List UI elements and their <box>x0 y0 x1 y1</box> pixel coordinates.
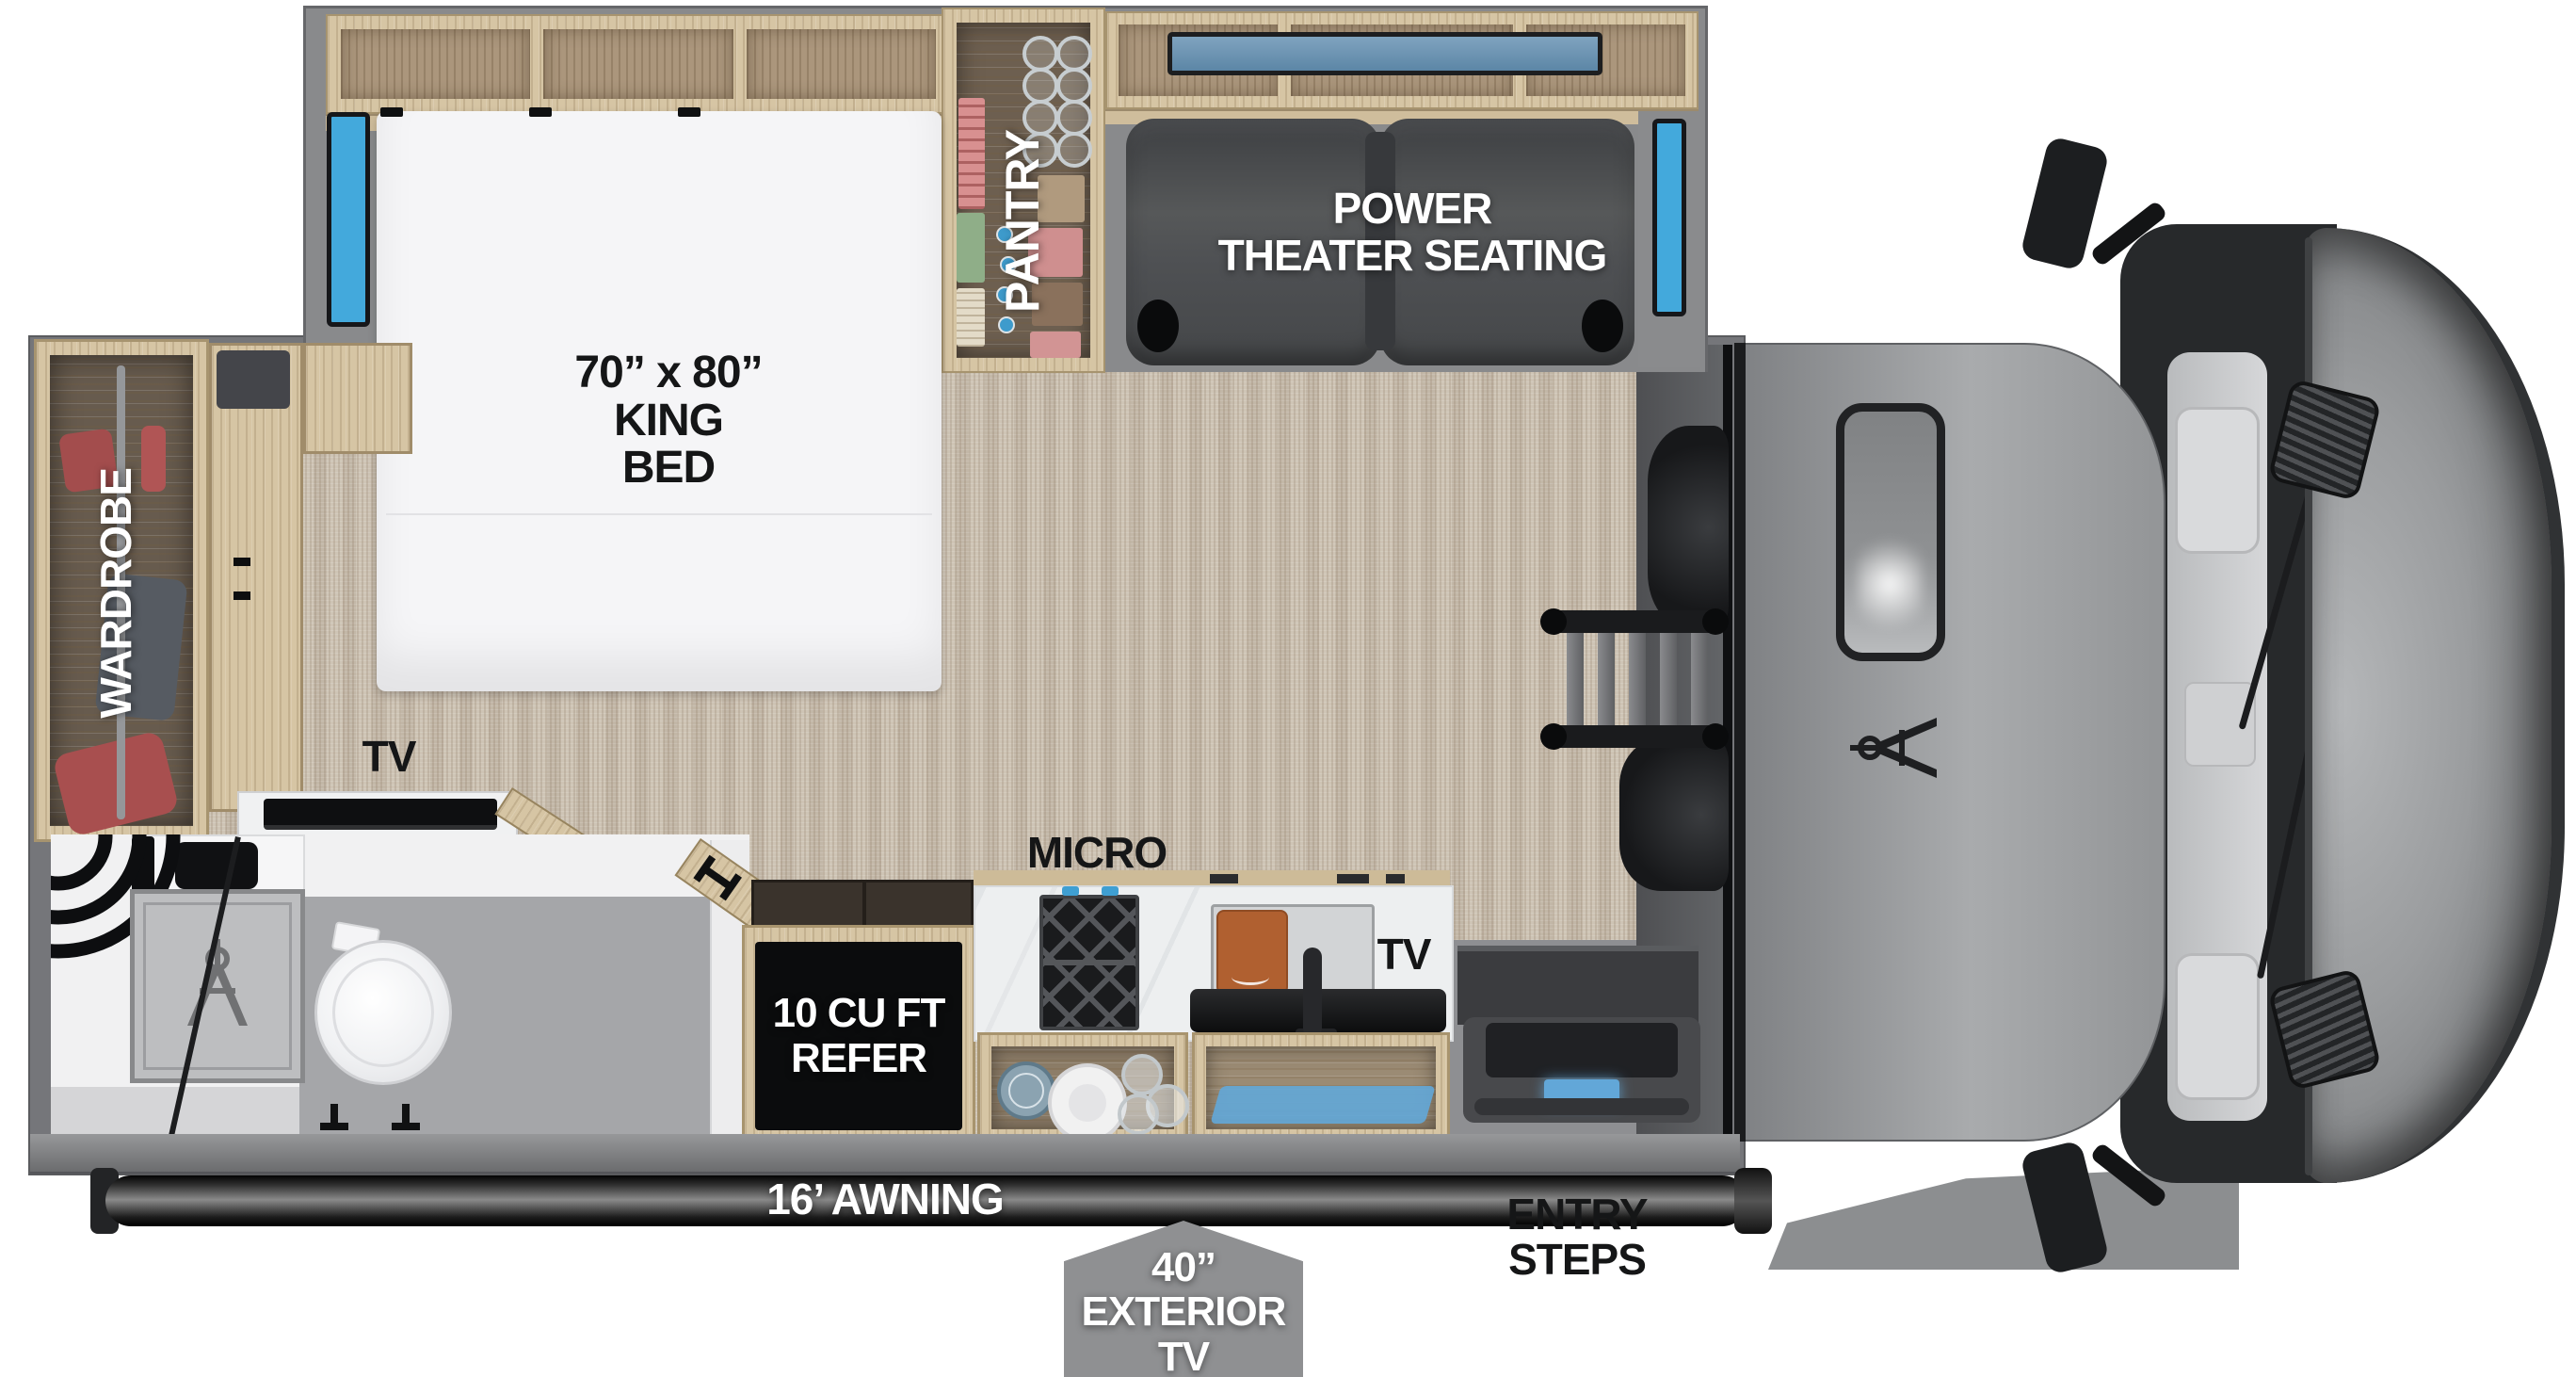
bottom-sidewall <box>30 1134 1740 1174</box>
refer-label-line1: 10 CU FT <box>773 991 945 1036</box>
nightstand-tray <box>217 350 290 409</box>
toilet <box>314 940 452 1085</box>
cab-seat-bottom <box>1619 738 1729 891</box>
overhead-cabinet-bed <box>326 14 951 114</box>
bed-handle <box>678 107 700 117</box>
theater-label-line1: POWER <box>1333 186 1492 233</box>
cabover-left-edge <box>1734 343 1746 1142</box>
bowl <box>997 1061 1055 1120</box>
counter-back-mark <box>1337 874 1369 883</box>
wardrobe-label: WARDROBE <box>38 405 196 782</box>
bunk-ladder <box>1540 607 1729 753</box>
exterior-tv-line1: 40” EXTERIOR <box>1064 1245 1303 1335</box>
theater-seating-label: POWER THEATER SEATING <box>1158 181 1666 284</box>
ladder-rail <box>1546 610 1723 633</box>
kitchen-tv-label: TV <box>1361 931 1446 978</box>
kitchen-tv-text: TV <box>1377 931 1431 977</box>
living-window <box>1652 119 1686 316</box>
compass-logo-icon <box>165 939 270 1033</box>
counter-back-mark <box>1210 874 1238 883</box>
kitchen-faucet <box>1303 948 1322 1038</box>
cabinet-handle <box>233 591 250 600</box>
king-bed-label: 70” x 80” KING BED <box>527 341 810 501</box>
ladder-rail <box>1546 725 1723 748</box>
awning-label: 16’ AWNING <box>725 1174 1045 1226</box>
floor-mat-hook <box>392 1104 420 1130</box>
awning-end-cap <box>1734 1168 1772 1234</box>
compass-logo-icon <box>1850 692 1944 803</box>
cab-seat-top <box>1648 426 1729 629</box>
bedroom-side-cabinet <box>209 343 303 812</box>
bedroom-window <box>327 112 370 327</box>
refrigerator: 10 CU FT REFER <box>755 942 962 1130</box>
counter-back-mark <box>1386 874 1405 883</box>
plate <box>1048 1063 1127 1142</box>
exterior-tv-line2: TV <box>1158 1335 1209 1377</box>
cabinet-door-panel <box>341 29 530 99</box>
drawer-mat <box>1210 1086 1435 1124</box>
stove-cooktop <box>1039 895 1139 1030</box>
theater-label-line2: THEATER SEATING <box>1218 233 1607 280</box>
bedroom-tv-panel <box>264 799 497 830</box>
pantry-label-text: PANTRY <box>997 130 1048 313</box>
theater-window-slot <box>1167 32 1602 75</box>
stove-knob <box>1062 886 1079 896</box>
entry-steps-text: ENTRY STEPS <box>1450 1191 1704 1283</box>
floor-mat-hook <box>320 1104 348 1130</box>
bed-fold-line <box>386 513 932 515</box>
bedroom-tv-label: TV <box>346 733 431 780</box>
glass <box>1118 1093 1159 1135</box>
entry-step-lip <box>1474 1098 1689 1115</box>
bed-bed-text: BED <box>622 445 715 492</box>
wardrobe-label-text: WARDROBE <box>93 468 140 718</box>
cabinet-door-panel <box>543 29 733 99</box>
bed-handle <box>529 107 552 117</box>
toilet-bowl-ring <box>332 958 434 1067</box>
cabinet-handle <box>233 558 250 566</box>
bathroom <box>51 834 749 1138</box>
cab-interior-view <box>2167 352 2267 1121</box>
microwave-text: MICRO <box>1027 830 1167 875</box>
cupholder <box>1137 300 1179 352</box>
cab-seat-through-glass <box>2175 953 2260 1100</box>
bedroom-tv-text: TV <box>362 734 416 779</box>
rv-floorplan-diagram: PANTRY POWER THEATER SEATING 70” x 80” K… <box>0 0 2576 1377</box>
exterior-tv-tab: 40” EXTERIOR TV <box>1064 1221 1303 1377</box>
cutting-board <box>1216 910 1288 995</box>
bed-king-text: KING <box>614 397 723 445</box>
refer-label-line2: REFER <box>791 1036 926 1081</box>
entry-steps-label: ENTRY STEPS <box>1450 1213 1704 1260</box>
kitchen-lower-cabinet-dishes <box>977 1032 1188 1143</box>
entry-back-panel <box>1457 946 1699 1025</box>
cabinet-door-panel <box>747 29 936 99</box>
pantry-label: PANTRY <box>947 66 1098 377</box>
stove-knob <box>1102 886 1119 896</box>
cabover-bunk-panel <box>1734 343 2165 1142</box>
cab-seat-through-glass <box>2175 407 2260 554</box>
bed-size-text: 70” x 80” <box>574 349 762 397</box>
kitchen-lower-cabinet-mat <box>1192 1032 1450 1143</box>
exterior-tv-label: 40” EXTERIOR TV <box>1064 1221 1303 1377</box>
entry-step-tread <box>1486 1023 1678 1077</box>
cupholder <box>1582 300 1623 352</box>
skylight-glare <box>1857 527 1923 640</box>
bedroom-nightstand <box>303 343 412 454</box>
awning-text: 16’ AWNING <box>766 1176 1004 1223</box>
microwave-label: MICRO <box>1017 829 1177 876</box>
bed-handle <box>380 107 403 117</box>
